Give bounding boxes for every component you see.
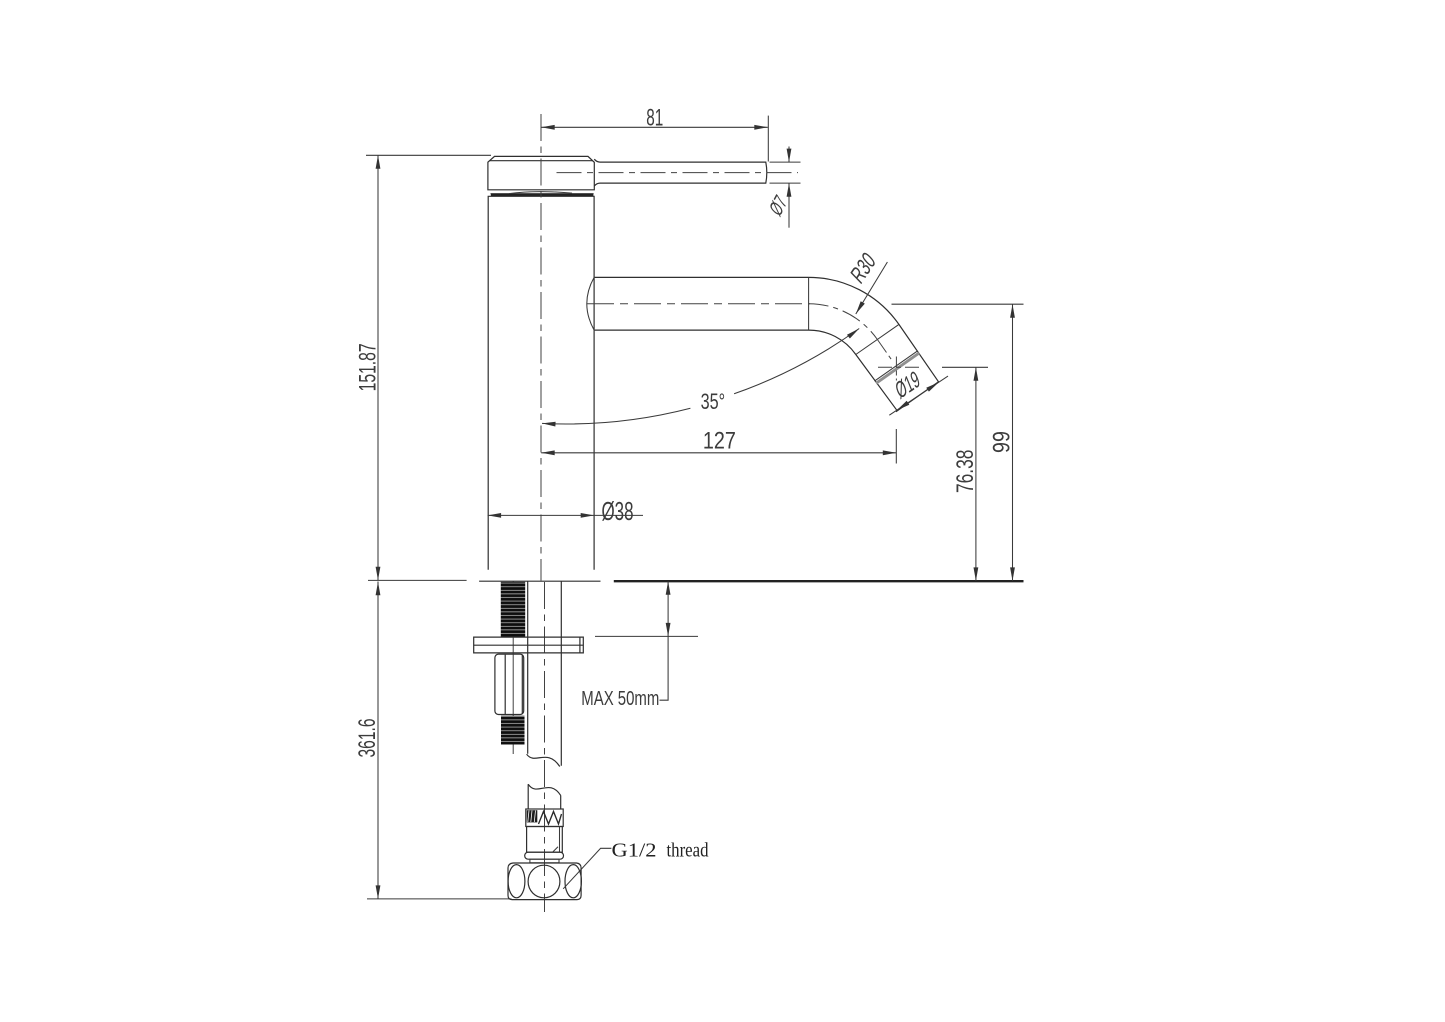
svg-text:99: 99	[989, 431, 1016, 453]
svg-text:81: 81	[646, 105, 663, 132]
svg-text:127: 127	[703, 427, 736, 454]
svg-text:76.38: 76.38	[952, 450, 979, 494]
svg-text:Ø38: Ø38	[602, 496, 634, 526]
svg-text:thread: thread	[667, 840, 709, 862]
svg-text:35°: 35°	[701, 389, 726, 414]
svg-text:151.87: 151.87	[355, 343, 382, 391]
svg-text:MAX 50mm: MAX 50mm	[581, 687, 659, 710]
svg-text:G1/2: G1/2	[612, 840, 657, 862]
svg-text:361.6: 361.6	[354, 719, 381, 758]
